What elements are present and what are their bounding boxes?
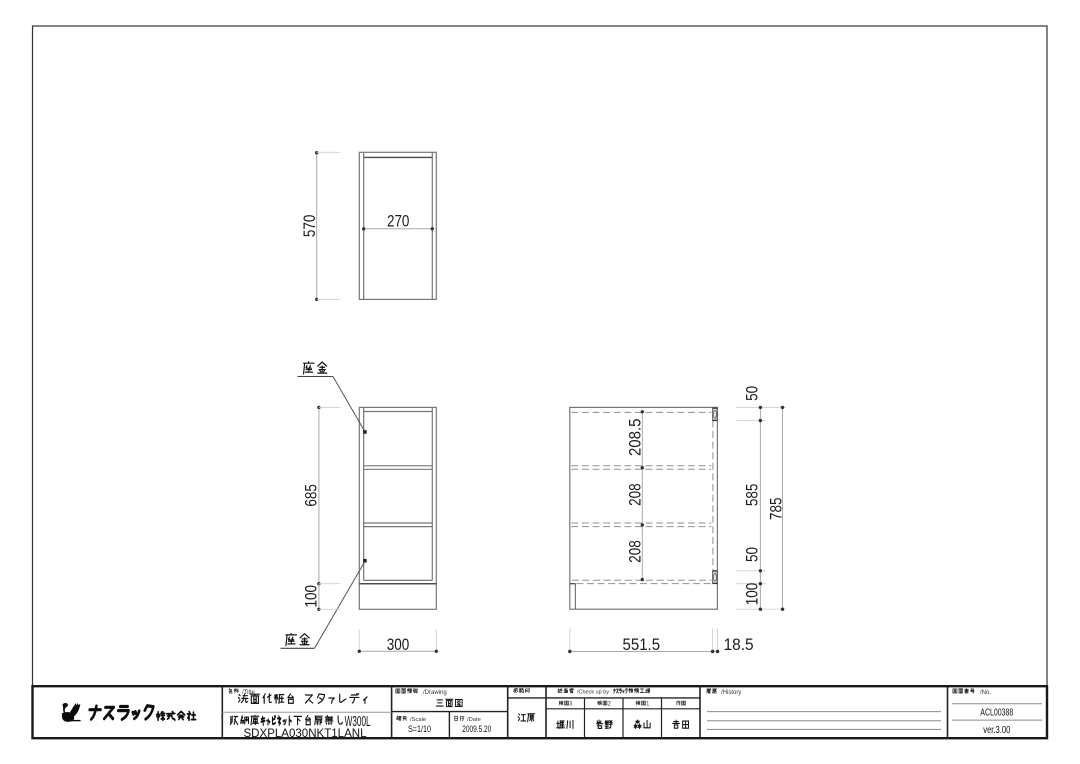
svg-text:50: 50 — [743, 547, 761, 562]
svg-text:300: 300 — [387, 636, 410, 654]
svg-text:208: 208 — [626, 483, 644, 506]
svg-text:50: 50 — [743, 386, 761, 401]
svg-text:270: 270 — [387, 212, 410, 230]
svg-text:3: 3 — [569, 701, 572, 708]
svg-text:S=1/10: S=1/10 — [408, 724, 431, 734]
svg-text:18.5: 18.5 — [724, 636, 754, 654]
svg-text:/Date: /Date — [467, 717, 481, 723]
svg-text:100: 100 — [302, 585, 320, 608]
svg-text:208: 208 — [626, 540, 644, 563]
svg-text:/Drawing: /Drawing — [423, 690, 447, 696]
svg-text:2: 2 — [608, 701, 611, 708]
svg-text:208.5: 208.5 — [626, 419, 644, 457]
svg-text:685: 685 — [302, 484, 320, 507]
svg-text:ver.3.00: ver.3.00 — [983, 725, 1010, 736]
svg-text:551.5: 551.5 — [623, 636, 661, 654]
svg-text:/Scale: /Scale — [410, 717, 426, 723]
svg-text:1: 1 — [646, 701, 649, 708]
svg-text:/Check up by: /Check up by — [577, 690, 609, 696]
svg-text:/History: /History — [721, 690, 741, 696]
svg-text:785: 785 — [768, 497, 786, 520]
svg-text:585: 585 — [743, 484, 761, 507]
svg-text:100: 100 — [743, 583, 761, 606]
svg-text:570: 570 — [301, 215, 319, 238]
svg-text:/No.: /No. — [980, 690, 991, 696]
svg-text:SDXPLA030NKT1LANL: SDXPLA030NKT1LANL — [244, 726, 367, 740]
svg-text:2009.5.20: 2009.5.20 — [462, 724, 491, 734]
svg-text:ACL00388: ACL00388 — [980, 706, 1013, 718]
